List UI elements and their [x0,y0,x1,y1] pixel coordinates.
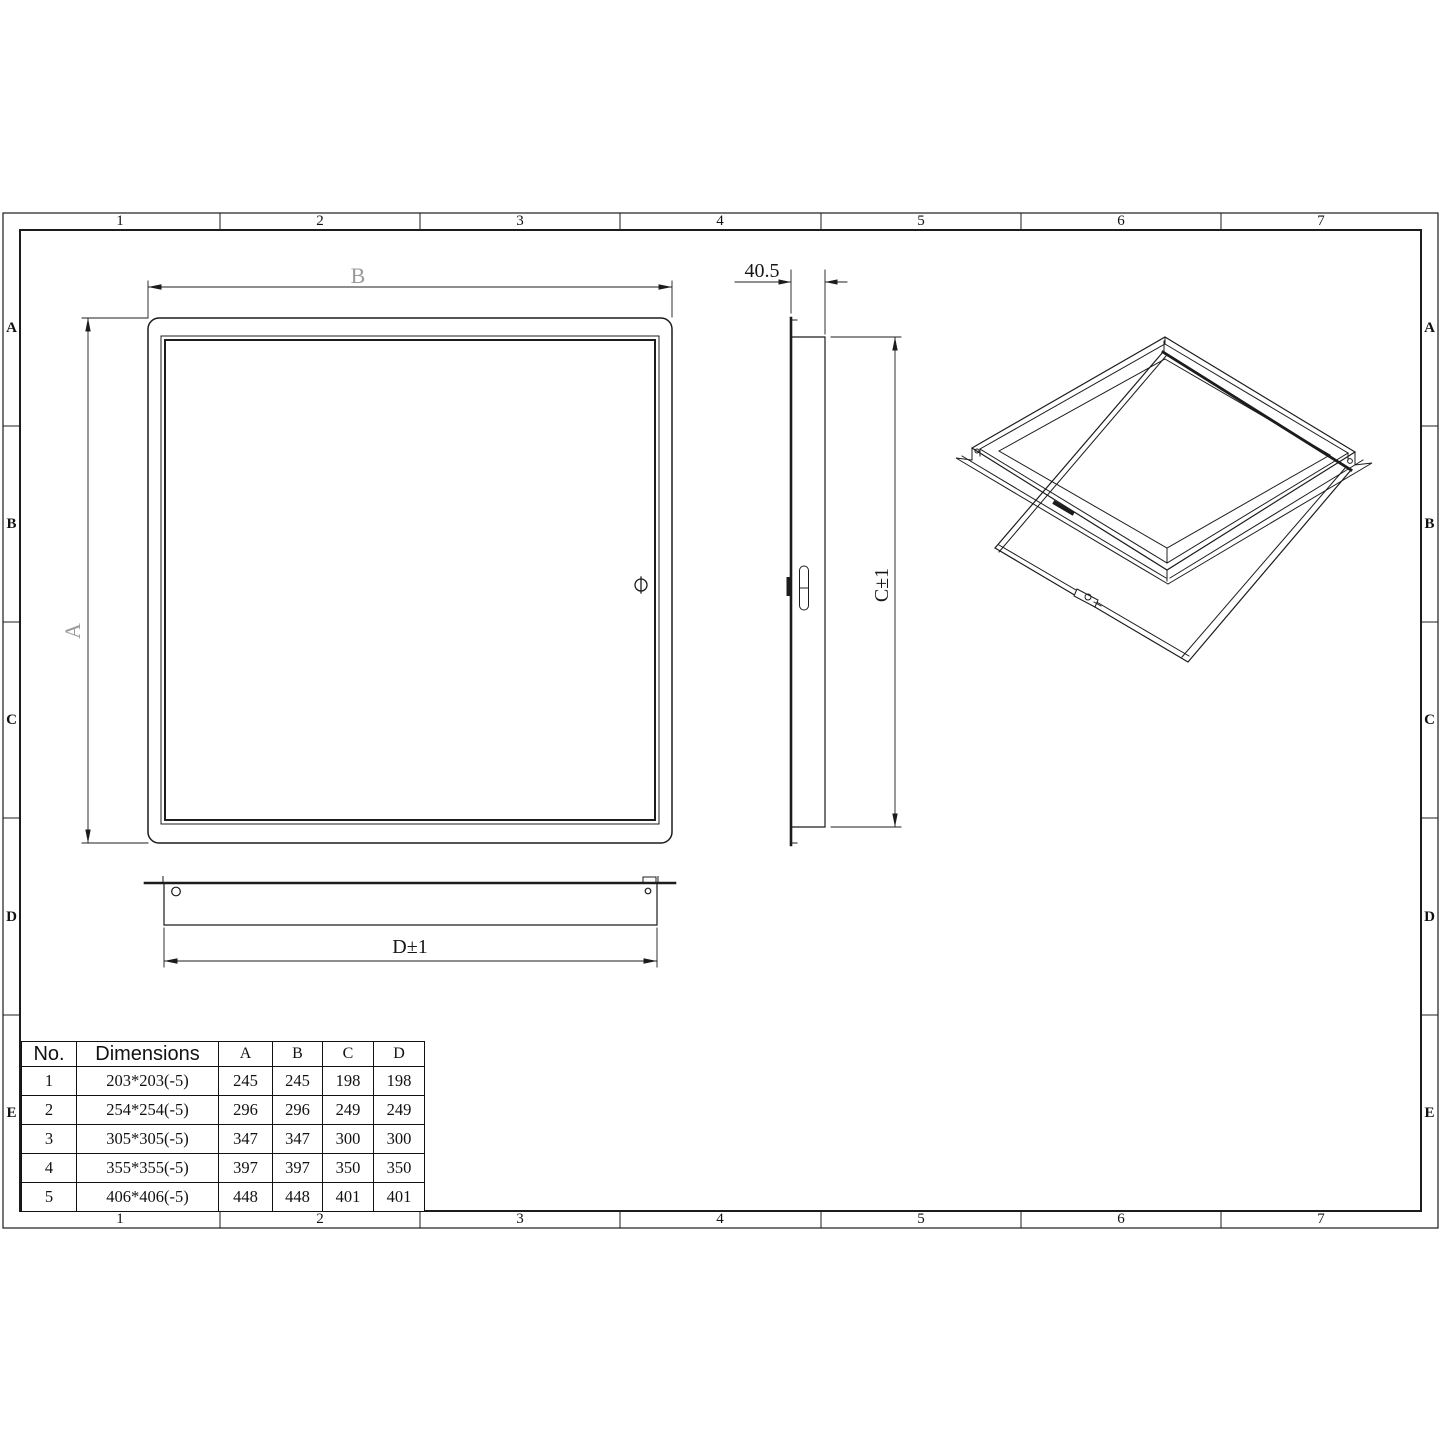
iso-door [995,341,1351,662]
table-row: 5 406*406(-5) 448 448 401 401 [22,1183,425,1212]
col-label-bottom-5: 5 [901,1210,941,1228]
col-label-bottom-3: 3 [500,1210,540,1228]
table-row: 2 254*254(-5) 296 296 249 249 [22,1096,425,1125]
col-label-bottom-7: 7 [1301,1210,1341,1228]
dim-label-c: C±1 [870,550,894,620]
table-header-d: D [374,1042,425,1067]
row-label-right-a: A [1421,319,1438,337]
col-label-top-2: 2 [300,212,340,230]
col-label-bottom-6: 6 [1101,1210,1141,1228]
dimensions-table: No. Dimensions A B C D 1 203*203(-5) 245… [21,1041,425,1212]
row-label-left-c: C [3,711,20,729]
col-label-top-6: 6 [1101,212,1141,230]
row-label-right-e: E [1421,1104,1438,1122]
dim-label-b: B [338,264,378,288]
col-label-top-4: 4 [700,212,740,230]
dim-b-lines [148,281,672,317]
col-label-bottom-1: 1 [100,1210,140,1228]
col-label-top-5: 5 [901,212,941,230]
row-label-right-c: C [1421,711,1438,729]
table-row: 1 203*203(-5) 245 245 198 198 [22,1067,425,1096]
front-view [82,281,672,843]
dim-label-d: D±1 [375,936,445,958]
table-header-a: A [219,1042,273,1067]
isometric-view [956,337,1372,662]
row-label-right-b: B [1421,515,1438,533]
row-label-left-d: D [3,908,20,926]
table-header-b: B [273,1042,323,1067]
table-header-dimensions: Dimensions [77,1042,219,1067]
keyhole-icon [635,577,647,593]
iso-latch [1074,589,1101,607]
table-header-no: No. [22,1042,77,1067]
table-header-row: No. Dimensions A B C D [22,1042,425,1067]
col-label-top-3: 3 [500,212,540,230]
dim-label-40-5: 40.5 [727,260,797,282]
table-row: 3 305*305(-5) 347 347 300 300 [22,1125,425,1154]
col-label-bottom-2: 2 [300,1210,340,1228]
row-label-left-a: A [3,319,20,337]
iso-frame [956,337,1372,584]
row-label-left-b: B [3,515,20,533]
table-row: 4 355*355(-5) 397 397 350 350 [22,1154,425,1183]
col-label-top-1: 1 [100,212,140,230]
row-label-left-e: E [3,1104,20,1122]
col-label-bottom-4: 4 [700,1210,740,1228]
table-header-c: C [323,1042,374,1067]
drawing-sheet: 1 2 3 4 5 6 7 1 2 3 4 5 6 7 A B C D E A … [0,0,1440,1440]
dim-a-lines [82,318,148,843]
col-label-top-7: 7 [1301,212,1341,230]
row-label-right-d: D [1421,908,1438,926]
dim-label-a: A [61,611,85,651]
